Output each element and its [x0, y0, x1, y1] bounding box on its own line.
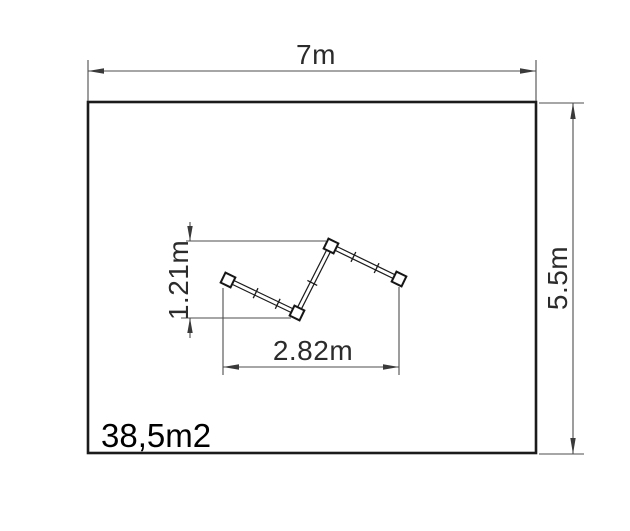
item-height-label: 1.21m [163, 240, 194, 320]
beam-segment-core [331, 246, 399, 279]
dimension-item-width: 2.82m [223, 287, 399, 375]
arrow-down-icon [570, 438, 575, 454]
balance-beam [221, 239, 407, 321]
dimension-outer-width: 7m [88, 39, 536, 101]
area-label: 38,5m2 [101, 417, 211, 454]
arrow-right-icon [383, 364, 399, 369]
technical-drawing-canvas: 7m 5.5m 1.21m 2.82m [0, 0, 630, 531]
outer-height-label: 5.5m [542, 246, 573, 310]
outer-width-label: 7m [296, 39, 336, 70]
arrow-right-icon [520, 68, 536, 73]
floor-plan-drawing: 7m 5.5m 1.21m 2.82m [0, 0, 630, 531]
beam-segment-core [228, 280, 297, 313]
arrow-left-icon [88, 68, 104, 73]
dimension-item-height: 1.21m [163, 222, 326, 338]
arrow-left-icon [223, 364, 239, 369]
item-width-label: 2.82m [273, 335, 353, 366]
dimension-outer-height: 5.5m [539, 103, 584, 454]
beam-segment-core [297, 246, 331, 313]
arrow-down-icon [187, 226, 192, 241]
arrow-up-icon [570, 103, 575, 119]
